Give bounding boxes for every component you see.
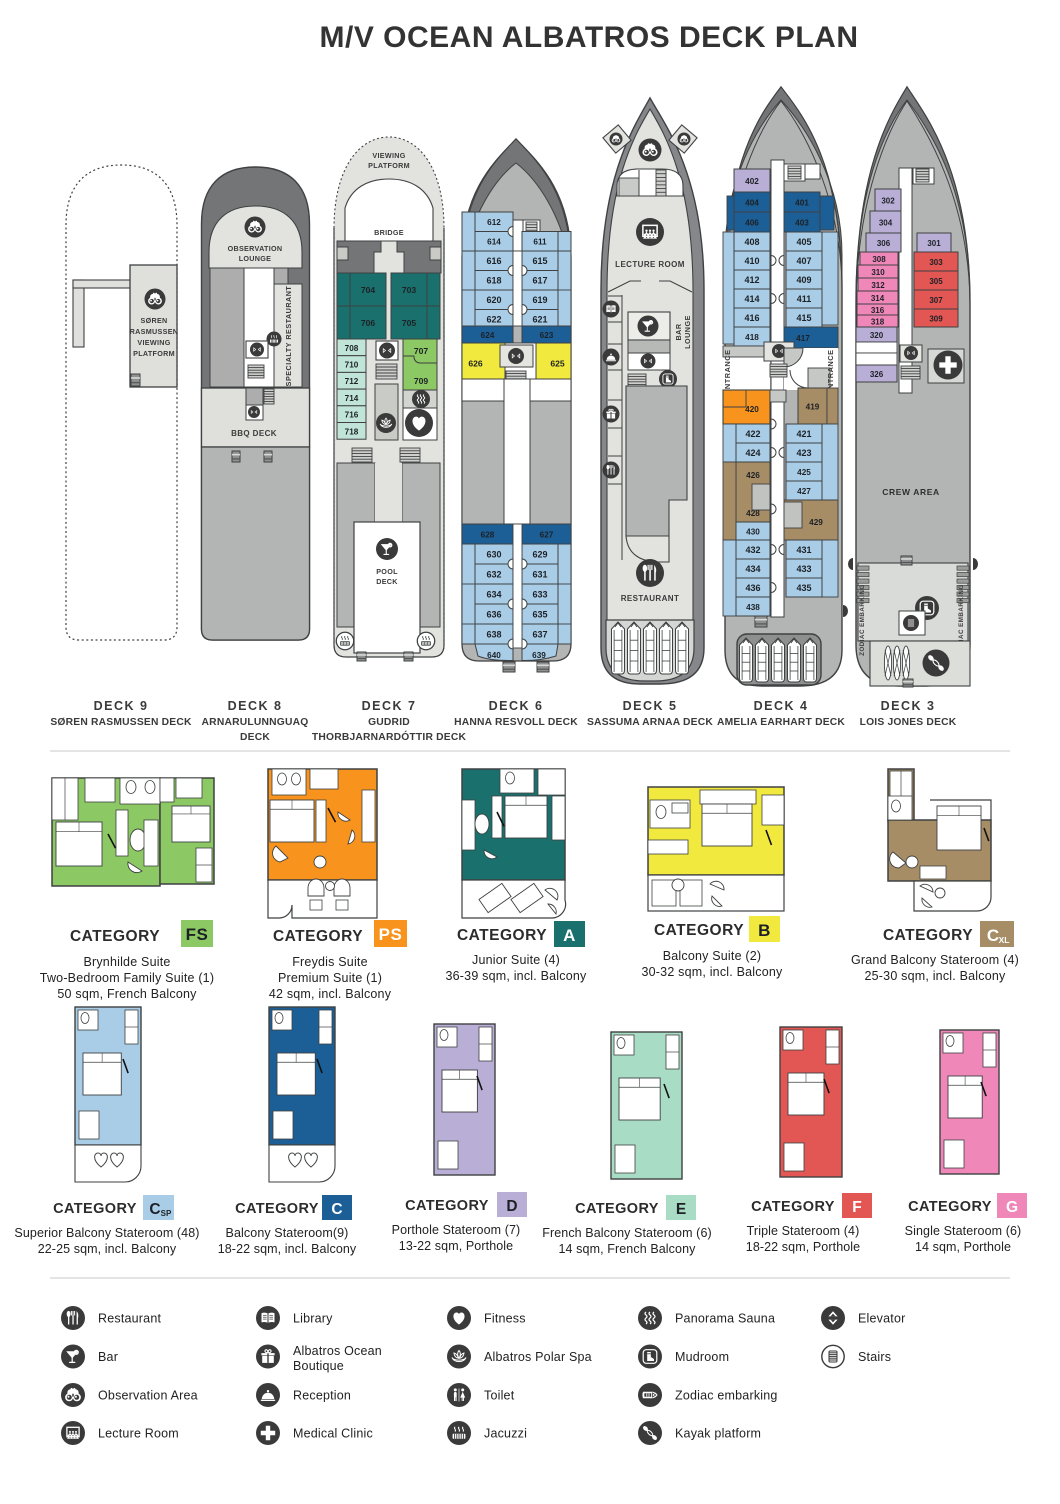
svg-text:14 sqm, Porthole: 14 sqm, Porthole xyxy=(915,1240,1011,1254)
svg-text:BAR: BAR xyxy=(674,323,683,340)
svg-text:A: A xyxy=(563,926,576,945)
svg-text:619: 619 xyxy=(532,295,547,305)
svg-text:638: 638 xyxy=(486,629,501,639)
svg-text:438: 438 xyxy=(746,603,760,612)
svg-text:406: 406 xyxy=(745,218,759,227)
svg-text:618: 618 xyxy=(486,276,501,286)
svg-text:DECK: DECK xyxy=(240,732,270,743)
svg-text:411: 411 xyxy=(797,294,812,304)
svg-text:THORBJARNARDÓTTIR DECK: THORBJARNARDÓTTIR DECK xyxy=(312,730,467,743)
svg-text:CATEGORY: CATEGORY xyxy=(235,1201,319,1217)
svg-text:Balcony Suite (2): Balcony Suite (2) xyxy=(663,949,762,963)
svg-text:628: 628 xyxy=(481,530,495,539)
svg-text:410: 410 xyxy=(744,256,759,266)
svg-text:Fitness: Fitness xyxy=(484,1312,526,1326)
svg-text:Albatros Ocean: Albatros Ocean xyxy=(293,1344,382,1358)
svg-text:LECTURE ROOM: LECTURE ROOM xyxy=(615,260,685,269)
svg-text:VIEWING: VIEWING xyxy=(137,338,170,347)
svg-text:615: 615 xyxy=(532,256,547,266)
svg-text:612: 612 xyxy=(487,218,501,227)
svg-text:309: 309 xyxy=(929,314,943,323)
svg-text:617: 617 xyxy=(532,276,547,286)
svg-text:HANNA RESVOLL DECK: HANNA RESVOLL DECK xyxy=(454,717,578,728)
svg-text:403: 403 xyxy=(795,218,809,227)
svg-text:716: 716 xyxy=(345,411,359,420)
svg-text:VIEWING: VIEWING xyxy=(372,151,405,160)
svg-text:CATEGORY: CATEGORY xyxy=(751,1199,835,1215)
svg-text:RASMUSSEN: RASMUSSEN xyxy=(130,327,179,336)
svg-text:CATEGORY: CATEGORY xyxy=(405,1198,489,1214)
svg-text:Restaurant: Restaurant xyxy=(98,1312,161,1326)
svg-text:421: 421 xyxy=(796,429,811,439)
svg-text:DECK 4: DECK 4 xyxy=(754,699,809,713)
svg-text:625: 625 xyxy=(550,358,565,368)
svg-text:Freydis Suite: Freydis Suite xyxy=(292,955,368,969)
svg-text:405: 405 xyxy=(796,237,811,247)
svg-text:22-25 sqm, incl. Balcony: 22-25 sqm, incl. Balcony xyxy=(38,1242,177,1256)
svg-text:Albatros Polar Spa: Albatros Polar Spa xyxy=(484,1350,592,1364)
svg-text:432: 432 xyxy=(745,545,760,555)
svg-text:703: 703 xyxy=(402,285,417,295)
svg-text:Balcony Stateroom(9): Balcony Stateroom(9) xyxy=(226,1226,349,1240)
svg-text:C: C xyxy=(331,1201,342,1218)
svg-text:Single Stateroom (6): Single Stateroom (6) xyxy=(905,1224,1022,1238)
svg-text:LOUNGE: LOUNGE xyxy=(683,315,692,349)
svg-text:718: 718 xyxy=(345,427,359,436)
svg-text:Reception: Reception xyxy=(293,1389,351,1403)
svg-text:705: 705 xyxy=(402,318,417,328)
svg-text:633: 633 xyxy=(532,589,547,599)
svg-text:631: 631 xyxy=(532,569,547,579)
svg-text:316: 316 xyxy=(871,306,885,315)
svg-text:CATEGORY: CATEGORY xyxy=(575,1201,659,1217)
svg-text:18-22 sqm, incl. Balcony: 18-22 sqm, incl. Balcony xyxy=(218,1242,357,1256)
svg-text:427: 427 xyxy=(797,487,811,496)
svg-text:402: 402 xyxy=(745,177,759,186)
svg-text:DECK 3: DECK 3 xyxy=(881,699,936,713)
svg-text:Zodiac embarking: Zodiac embarking xyxy=(675,1389,778,1403)
svg-text:640: 640 xyxy=(487,651,501,660)
svg-text:627: 627 xyxy=(540,530,554,539)
svg-text:436: 436 xyxy=(745,583,760,593)
svg-text:707: 707 xyxy=(414,346,429,356)
svg-text:Toilet: Toilet xyxy=(484,1389,515,1403)
svg-text:CATEGORY: CATEGORY xyxy=(70,928,160,945)
svg-text:B: B xyxy=(758,921,771,940)
svg-text:415: 415 xyxy=(796,313,811,323)
svg-text:312: 312 xyxy=(871,281,885,290)
svg-text:DECK: DECK xyxy=(376,577,398,586)
svg-text:Library: Library xyxy=(293,1312,333,1326)
svg-text:Superior Balcony Stateroom (48: Superior Balcony Stateroom (48) xyxy=(14,1226,199,1240)
svg-text:50 sqm, French Balcony: 50 sqm, French Balcony xyxy=(57,987,197,1001)
svg-text:FS: FS xyxy=(186,925,209,944)
svg-text:304: 304 xyxy=(879,218,893,227)
svg-text:704: 704 xyxy=(361,285,376,295)
svg-text:635: 635 xyxy=(532,609,547,619)
svg-text:314: 314 xyxy=(871,294,885,303)
svg-text:Two-Bedroom Family Suite (1): Two-Bedroom Family Suite (1) xyxy=(40,971,214,985)
svg-text:Mudroom: Mudroom xyxy=(675,1350,729,1364)
svg-text:624: 624 xyxy=(481,331,495,340)
svg-text:622: 622 xyxy=(486,315,501,325)
svg-text:435: 435 xyxy=(796,583,811,593)
svg-text:CREW AREA: CREW AREA xyxy=(882,487,940,497)
svg-text:ENTRANCE: ENTRANCE xyxy=(723,349,732,394)
svg-text:14 sqm, French Balcony: 14 sqm, French Balcony xyxy=(559,1242,697,1256)
svg-text:M/V OCEAN ALBATROS DECK PLAN: M/V OCEAN ALBATROS DECK PLAN xyxy=(320,21,859,54)
svg-text:French Balcony Stateroom (6): French Balcony Stateroom (6) xyxy=(542,1226,712,1240)
svg-text:BBQ DECK: BBQ DECK xyxy=(231,429,277,438)
svg-text:305: 305 xyxy=(929,277,943,286)
svg-text:318: 318 xyxy=(871,317,885,326)
svg-text:614: 614 xyxy=(487,238,501,247)
svg-text:639: 639 xyxy=(532,651,546,660)
svg-text:18-22 sqm, Porthole: 18-22 sqm, Porthole xyxy=(746,1240,860,1254)
svg-text:CATEGORY: CATEGORY xyxy=(457,927,547,944)
svg-text:C: C xyxy=(149,1201,160,1218)
svg-text:Grand Balcony Stateroom (4): Grand Balcony Stateroom (4) xyxy=(851,953,1019,967)
svg-text:Porthole Stateroom (7): Porthole Stateroom (7) xyxy=(392,1223,521,1237)
svg-text:13-22 sqm, Porthole: 13-22 sqm, Porthole xyxy=(399,1239,513,1253)
svg-text:710: 710 xyxy=(345,360,359,369)
svg-text:417: 417 xyxy=(796,334,810,343)
svg-text:401: 401 xyxy=(795,198,809,207)
svg-text:AMELIA EARHART DECK: AMELIA EARHART DECK xyxy=(717,717,845,728)
svg-text:404: 404 xyxy=(745,198,759,207)
svg-text:F: F xyxy=(852,1199,861,1216)
svg-text:PS: PS xyxy=(379,925,403,944)
svg-text:Junior Suite (4): Junior Suite (4) xyxy=(472,953,560,967)
svg-text:429: 429 xyxy=(809,518,823,527)
svg-text:42 sqm, incl. Balcony: 42 sqm, incl. Balcony xyxy=(269,987,392,1001)
svg-text:616: 616 xyxy=(486,256,501,266)
svg-text:434: 434 xyxy=(745,564,760,574)
svg-text:632: 632 xyxy=(486,569,501,579)
svg-text:426: 426 xyxy=(746,471,760,480)
svg-text:416: 416 xyxy=(744,313,759,323)
svg-text:418: 418 xyxy=(745,333,759,342)
svg-text:306: 306 xyxy=(877,239,891,248)
svg-text:621: 621 xyxy=(532,315,547,325)
svg-text:SASSUMA ARNAA DECK: SASSUMA ARNAA DECK xyxy=(587,717,713,728)
svg-text:326: 326 xyxy=(870,370,884,379)
svg-text:CATEGORY: CATEGORY xyxy=(654,922,744,939)
svg-text:636: 636 xyxy=(486,609,501,619)
svg-text:25-30 sqm, incl. Balcony: 25-30 sqm, incl. Balcony xyxy=(865,969,1007,983)
svg-text:C: C xyxy=(987,926,999,945)
svg-text:DECK 9: DECK 9 xyxy=(94,699,149,713)
svg-text:XL: XL xyxy=(999,935,1010,945)
svg-text:433: 433 xyxy=(796,564,811,574)
svg-text:709: 709 xyxy=(414,376,429,386)
svg-text:630: 630 xyxy=(486,549,501,559)
svg-text:620: 620 xyxy=(486,295,501,305)
svg-text:Jacuzzi: Jacuzzi xyxy=(484,1427,527,1441)
svg-text:Kayak platform: Kayak platform xyxy=(675,1427,761,1441)
svg-text:420: 420 xyxy=(745,405,759,414)
svg-text:422: 422 xyxy=(745,429,760,439)
svg-text:Medical Clinic: Medical Clinic xyxy=(293,1427,373,1441)
svg-text:POOL: POOL xyxy=(376,567,398,576)
svg-text:423: 423 xyxy=(796,448,811,458)
svg-text:SPECIALTY RESTAURANT: SPECIALTY RESTAURANT xyxy=(284,286,293,387)
svg-text:412: 412 xyxy=(744,275,759,285)
svg-text:CATEGORY: CATEGORY xyxy=(883,927,973,944)
svg-text:706: 706 xyxy=(361,318,376,328)
svg-text:430: 430 xyxy=(746,527,760,536)
svg-text:414: 414 xyxy=(744,294,759,304)
svg-text:419: 419 xyxy=(806,402,820,411)
svg-text:Observation Area: Observation Area xyxy=(98,1389,198,1403)
svg-text:623: 623 xyxy=(540,331,554,340)
svg-text:407: 407 xyxy=(796,256,811,266)
svg-text:30-32 sqm, incl. Balcony: 30-32 sqm, incl. Balcony xyxy=(642,965,784,979)
svg-text:Triple Stateroom (4): Triple Stateroom (4) xyxy=(747,1224,860,1238)
svg-text:DECK 5: DECK 5 xyxy=(623,699,678,713)
svg-text:ARNARULUNNGUAQ: ARNARULUNNGUAQ xyxy=(202,717,309,728)
svg-text:CATEGORY: CATEGORY xyxy=(908,1199,992,1215)
svg-text:626: 626 xyxy=(468,358,483,368)
svg-text:303: 303 xyxy=(929,258,943,267)
svg-text:634: 634 xyxy=(486,589,501,599)
svg-text:308: 308 xyxy=(872,255,886,264)
svg-text:SP: SP xyxy=(161,1209,172,1218)
svg-text:Boutique: Boutique xyxy=(293,1359,344,1373)
svg-text:307: 307 xyxy=(929,296,943,305)
svg-text:ZODIAC EMBARKING: ZODIAC EMBARKING xyxy=(859,584,866,656)
svg-text:712: 712 xyxy=(345,377,359,386)
svg-text:Panorama Sauna: Panorama Sauna xyxy=(675,1312,775,1326)
svg-text:Stairs: Stairs xyxy=(858,1350,891,1364)
svg-text:629: 629 xyxy=(532,549,547,559)
svg-text:310: 310 xyxy=(871,268,885,277)
svg-text:36-39 sqm, incl. Balcony: 36-39 sqm, incl. Balcony xyxy=(446,969,588,983)
svg-text:302: 302 xyxy=(881,196,895,205)
svg-text:LOIS JONES DECK: LOIS JONES DECK xyxy=(860,717,957,728)
svg-text:Elevator: Elevator xyxy=(858,1312,905,1326)
svg-text:Premium Suite (1): Premium Suite (1) xyxy=(278,971,382,985)
svg-text:OBSERVATION: OBSERVATION xyxy=(228,244,283,253)
svg-text:425: 425 xyxy=(797,468,811,477)
svg-text:CATEGORY: CATEGORY xyxy=(53,1201,137,1217)
svg-text:637: 637 xyxy=(532,629,547,639)
svg-text:320: 320 xyxy=(870,331,884,340)
svg-text:PLATFORM: PLATFORM xyxy=(368,161,410,170)
svg-text:GUDRID: GUDRID xyxy=(368,717,410,728)
svg-text:431: 431 xyxy=(796,545,811,555)
svg-text:DECK 7: DECK 7 xyxy=(362,699,417,713)
svg-text:LOUNGE: LOUNGE xyxy=(239,254,272,263)
svg-text:Brynhilde Suite: Brynhilde Suite xyxy=(83,955,170,969)
svg-text:714: 714 xyxy=(345,394,359,403)
svg-text:G: G xyxy=(1006,1199,1018,1216)
svg-text:D: D xyxy=(506,1198,517,1215)
svg-text:BRIDGE: BRIDGE xyxy=(374,228,404,237)
svg-text:Bar: Bar xyxy=(98,1350,118,1364)
svg-text:E: E xyxy=(676,1201,686,1218)
svg-text:708: 708 xyxy=(345,344,359,353)
svg-text:301: 301 xyxy=(927,239,941,248)
svg-text:CATEGORY: CATEGORY xyxy=(273,928,363,945)
svg-text:Lecture Room: Lecture Room xyxy=(98,1427,179,1441)
svg-text:DECK 6: DECK 6 xyxy=(489,699,544,713)
svg-text:SØREN: SØREN xyxy=(140,316,167,325)
svg-text:DECK 8: DECK 8 xyxy=(228,699,283,713)
svg-text:409: 409 xyxy=(796,275,811,285)
svg-text:RESTAURANT: RESTAURANT xyxy=(621,594,680,603)
svg-text:424: 424 xyxy=(745,448,760,458)
svg-text:PLATFORM: PLATFORM xyxy=(133,349,175,358)
svg-text:SØREN RASMUSSEN DECK: SØREN RASMUSSEN DECK xyxy=(50,717,192,728)
svg-text:408: 408 xyxy=(744,237,759,247)
svg-text:611: 611 xyxy=(533,238,547,247)
